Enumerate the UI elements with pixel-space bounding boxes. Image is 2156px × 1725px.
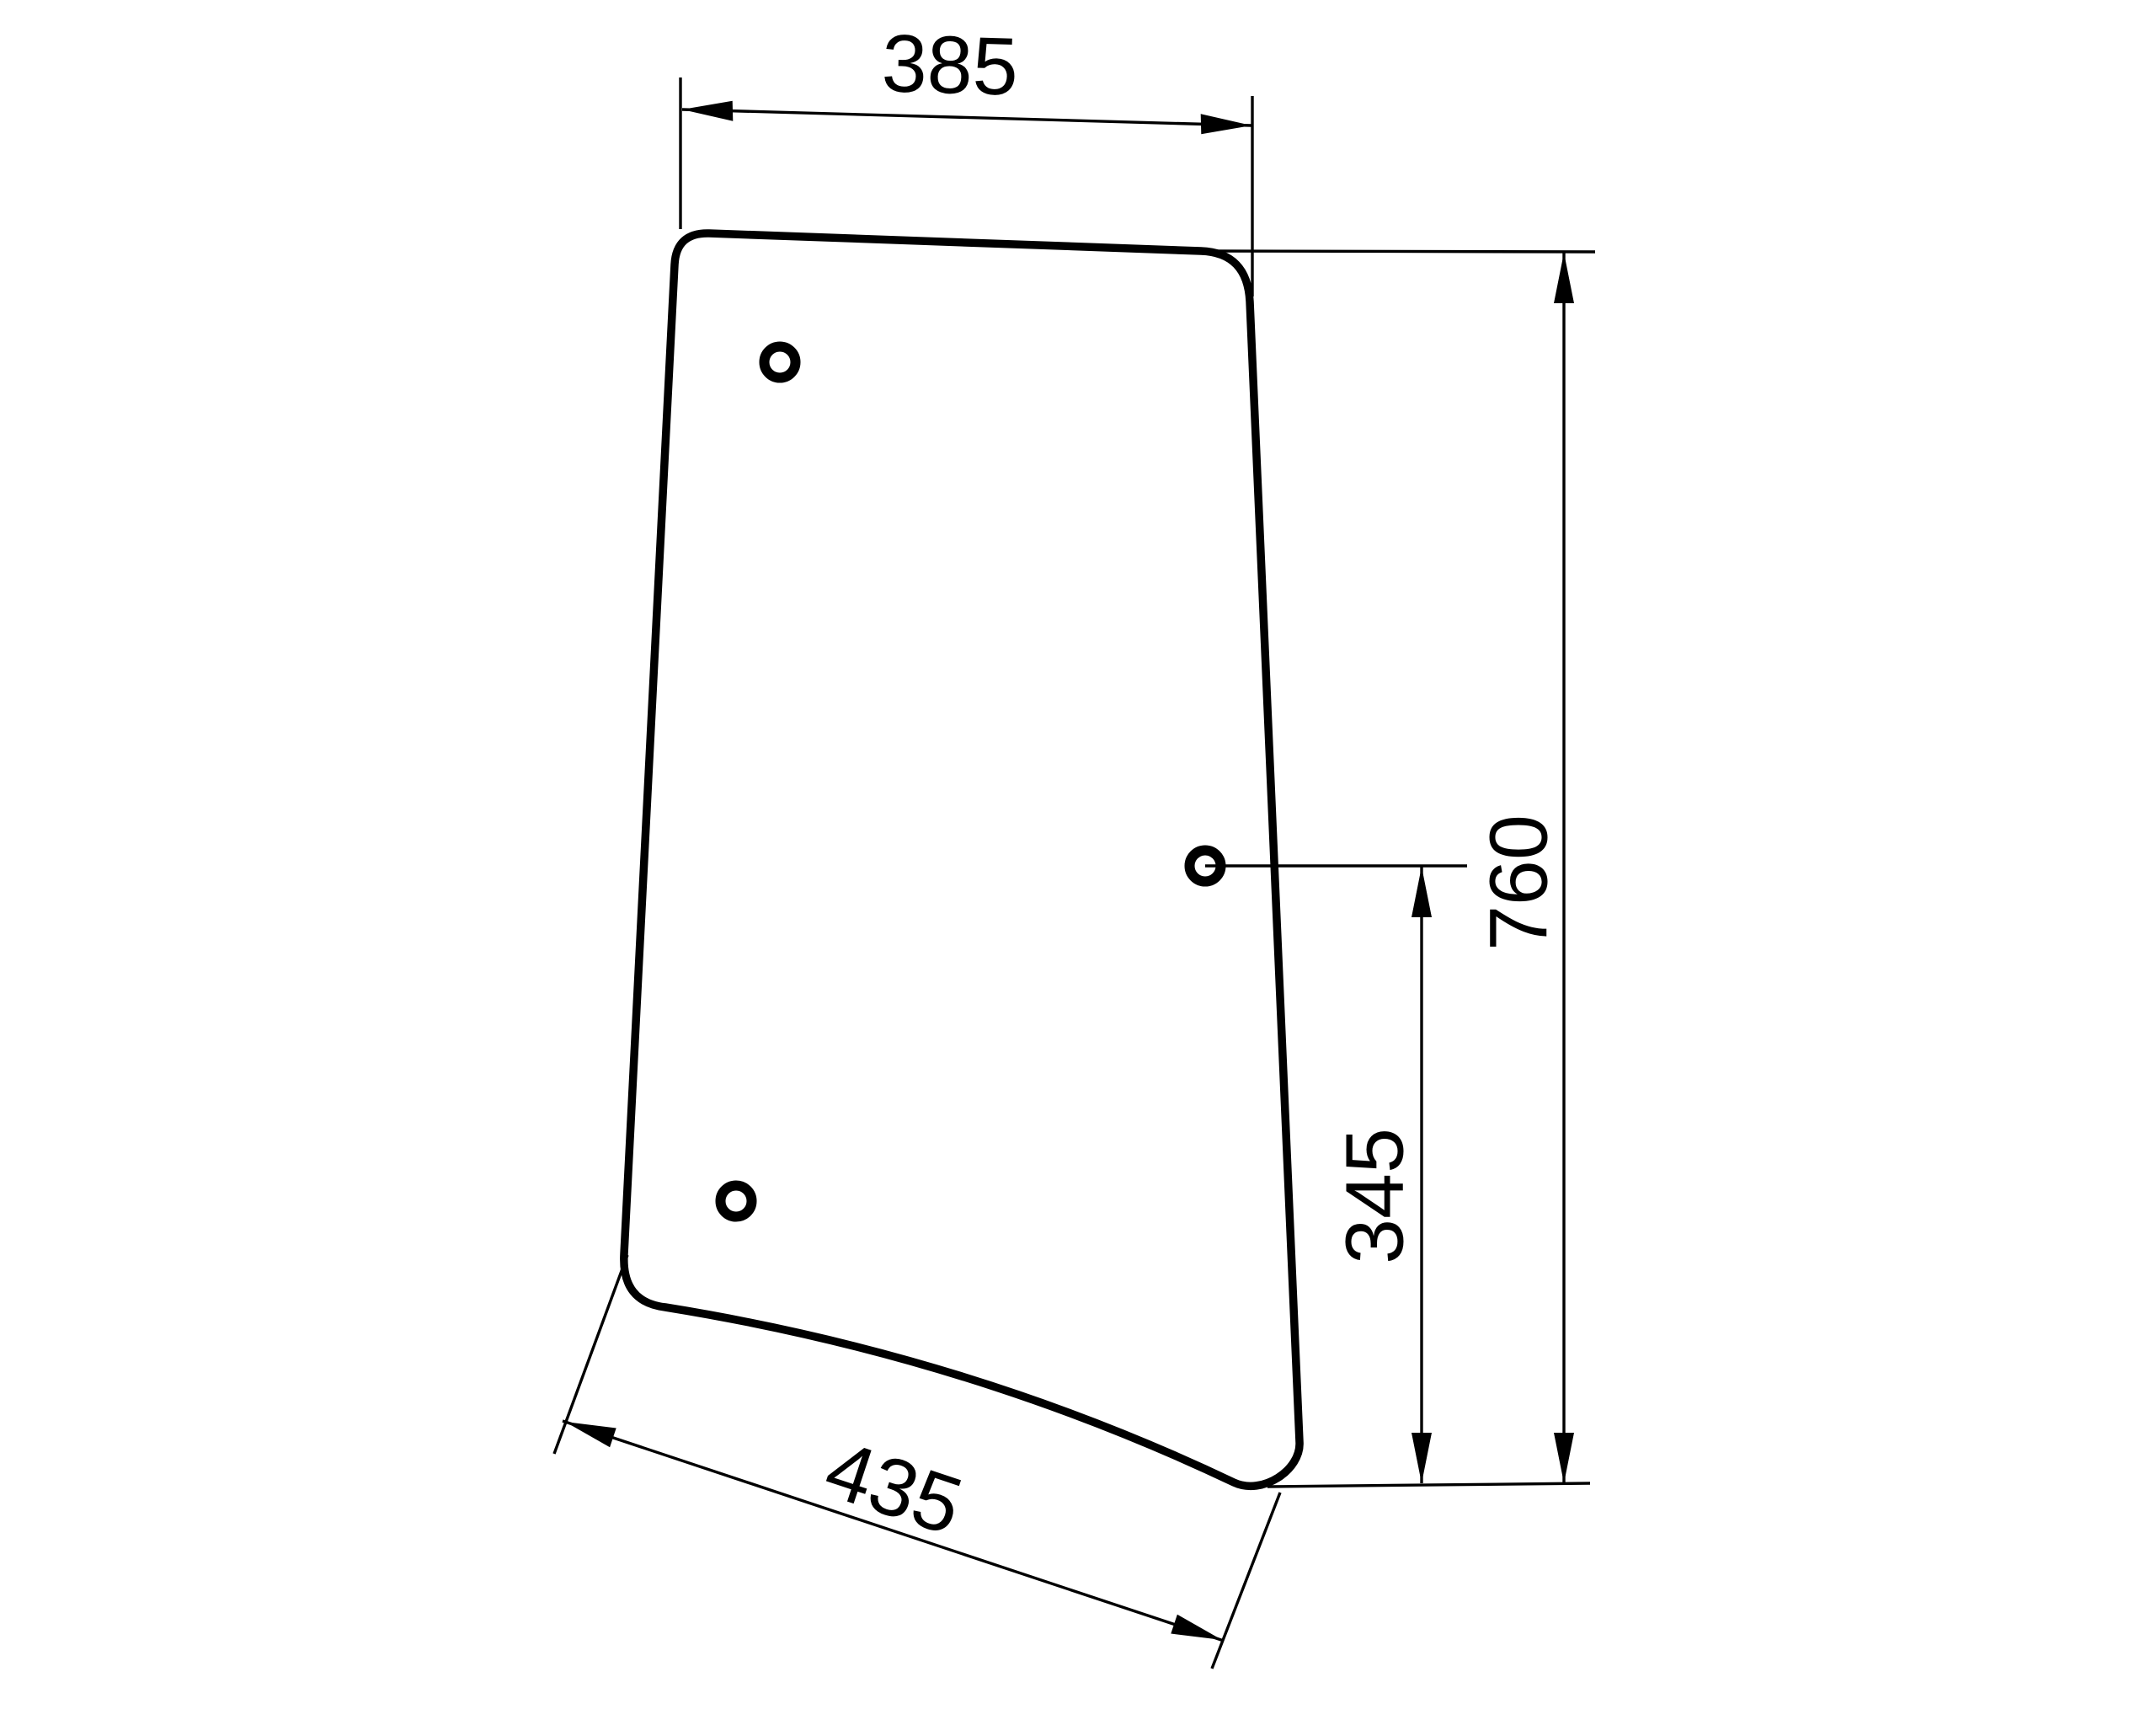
svg-text:760: 760 <box>1472 814 1564 951</box>
svg-text:385: 385 <box>881 17 1020 112</box>
svg-text:345: 345 <box>1328 1128 1420 1264</box>
svg-text:435: 435 <box>814 1423 973 1553</box>
